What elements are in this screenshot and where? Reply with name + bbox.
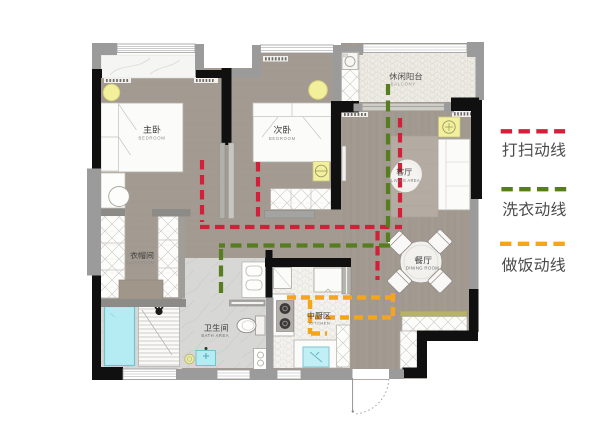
svg-text:CLOAKROOM: CLOAKROOM xyxy=(125,260,155,265)
svg-text:BEDROOM: BEDROOM xyxy=(269,136,296,141)
svg-text:BALCONY: BALCONY xyxy=(391,82,416,87)
svg-text:BATH AREA: BATH AREA xyxy=(201,333,229,338)
svg-text:LIVING AREA: LIVING AREA xyxy=(391,178,420,183)
svg-text:KITCHEN: KITCHEN xyxy=(309,321,330,326)
svg-text:DINING ROOM: DINING ROOM xyxy=(406,265,440,270)
svg-text:BEDROOM: BEDROOM xyxy=(138,136,165,141)
